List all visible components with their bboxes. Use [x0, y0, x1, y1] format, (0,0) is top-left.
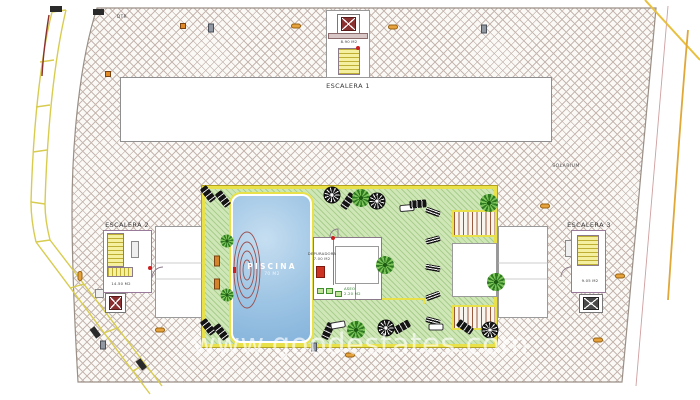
stair2-flight: [107, 233, 124, 267]
stair3-elevator-car-icon: [583, 297, 599, 310]
label-deck-note: DTR: [117, 14, 127, 19]
stair3-flight: [577, 235, 599, 266]
apartment-block-right: [498, 226, 548, 318]
shower-fixture: [335, 291, 342, 297]
label-stair2-area: 14.50 M2: [111, 281, 130, 286]
orange-oval-icon: [615, 274, 625, 279]
orange-oval-icon: [155, 328, 165, 333]
label-aseo-area: 2.20 M2: [344, 291, 361, 296]
pump-equipment: [316, 266, 325, 278]
red-dot-icon: [148, 266, 152, 270]
orange-oval-icon: [540, 204, 550, 209]
label-escalera3: ESCALERA 3: [567, 221, 611, 229]
gray-rect-icon: [481, 25, 487, 34]
annex-wall: [333, 238, 334, 285]
floor-plan-canvas: ESCALERA 1 ESCALERA 2 ESCALERA 3 SOLARIU…: [0, 0, 700, 400]
label-escalera1: ESCALERA 1: [326, 82, 370, 90]
lounger-dark-icon: [409, 199, 427, 208]
watermark-text: www.goodestates.com: [192, 327, 529, 361]
orange-oval-icon: [388, 25, 398, 30]
stair3-closet: [565, 240, 572, 257]
plant-icon: [221, 235, 234, 248]
stair2-closet: [131, 241, 139, 258]
label-piscina: PISCINA: [247, 262, 296, 271]
label-stair1-area: 8.90 M2: [341, 39, 358, 44]
palm-icon: [480, 194, 498, 212]
stair2-elevator-car-icon: [109, 296, 122, 310]
stair2-landing-steps: [107, 267, 133, 277]
bench-orange-icon: [214, 256, 220, 267]
label-escalera2: ESCALERA 2: [105, 221, 149, 229]
label-solarium: SOLARIUM: [552, 164, 579, 169]
red-dot-icon: [356, 46, 360, 50]
stair1-flight: [338, 48, 360, 75]
toilet-fixture: [317, 288, 324, 294]
orange-oval-icon: [78, 271, 83, 281]
gray-rect-icon: [100, 341, 106, 350]
stair1-elevator-car-icon: [341, 17, 356, 31]
orange-oval-icon: [593, 338, 603, 343]
pergola-top: [452, 210, 497, 237]
parasol-icon: [324, 187, 341, 204]
facade-tick: [50, 6, 62, 12]
palm-icon: [487, 273, 505, 291]
orange-oval-icon: [291, 24, 301, 29]
label-stair3-area: 9.05 M2: [582, 278, 599, 283]
red-dot-icon: [331, 236, 335, 240]
gray-rect-icon: [208, 24, 214, 33]
orange-square-icon: [105, 71, 111, 77]
annex-main-room: [335, 246, 379, 284]
label-piscina-area: 70 M2: [264, 272, 280, 277]
apartment-block-left: [155, 226, 202, 318]
stair2-side-box: [95, 289, 104, 298]
facade-accent-line: [42, 15, 49, 76]
sink-fixture: [326, 288, 333, 294]
label-depuradora-area: 7.00 M2: [314, 256, 331, 261]
orange-square-icon: [180, 23, 186, 29]
bench-orange-icon: [214, 279, 220, 290]
